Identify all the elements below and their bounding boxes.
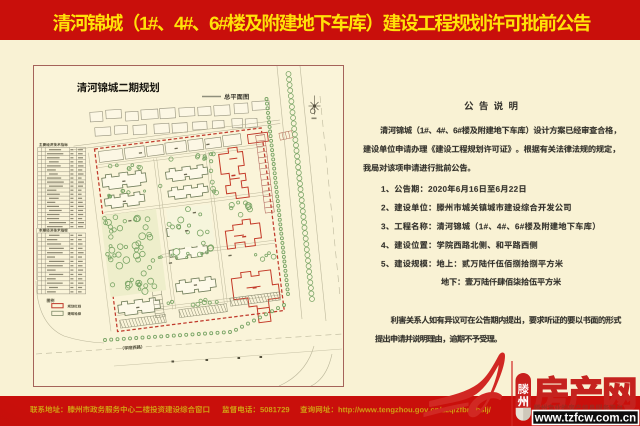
svg-text:www.tzfcw.com.cn: www.tzfcw.com.cn: [534, 413, 636, 425]
